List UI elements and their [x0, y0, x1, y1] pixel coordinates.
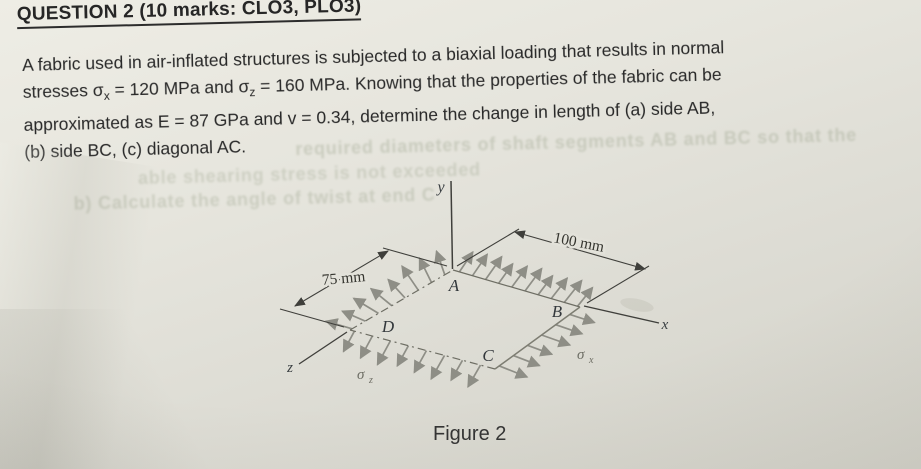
question-title: QUESTION 2 (10 marks: CLO3, PLO3) [17, 0, 362, 29]
figure-caption: Figure 2 [433, 423, 506, 446]
bleedthrough-text-line: b) Calculate the angle of twist at end C [73, 185, 435, 215]
problem-text-segment: stresses σ [23, 80, 104, 102]
scanned-exam-page: QUESTION 2 (10 marks: CLO3, PLO3) A fabr… [0, 0, 921, 469]
tilted-text-block: QUESTION 2 (10 marks: CLO3, PLO3) A fabr… [0, 0, 921, 469]
problem-text-segment: = 120 MPa and σ [109, 76, 249, 100]
question-title-text: QUESTION 2 (10 marks: CLO3, PLO3) [17, 0, 362, 29]
